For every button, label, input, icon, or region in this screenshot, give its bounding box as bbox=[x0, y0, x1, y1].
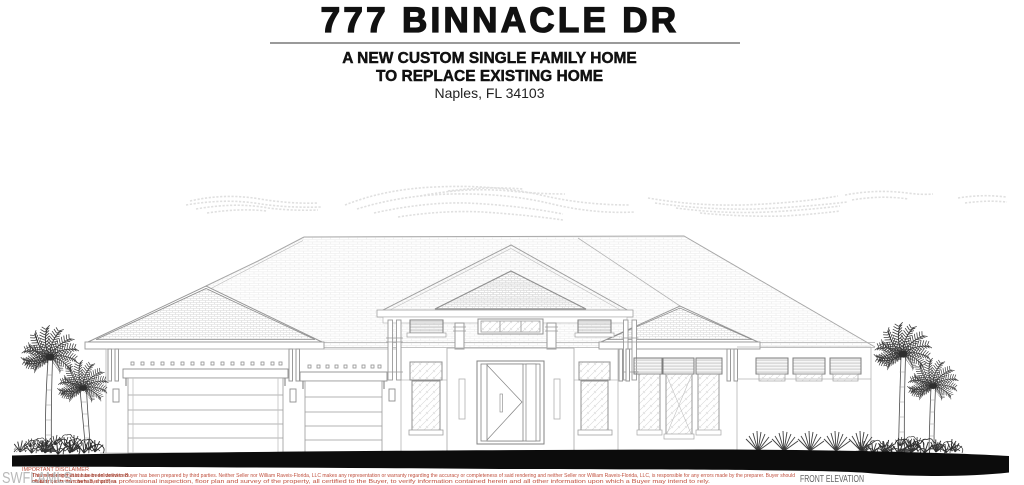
svg-text:FRONT ELEVATION: FRONT ELEVATION bbox=[800, 474, 864, 485]
svg-text:obtain, on its own behalf, a p: obtain, on its own behalf, a professiona… bbox=[32, 479, 710, 485]
svg-text:SWFLAMLS: SWFLAMLS bbox=[2, 470, 72, 485]
